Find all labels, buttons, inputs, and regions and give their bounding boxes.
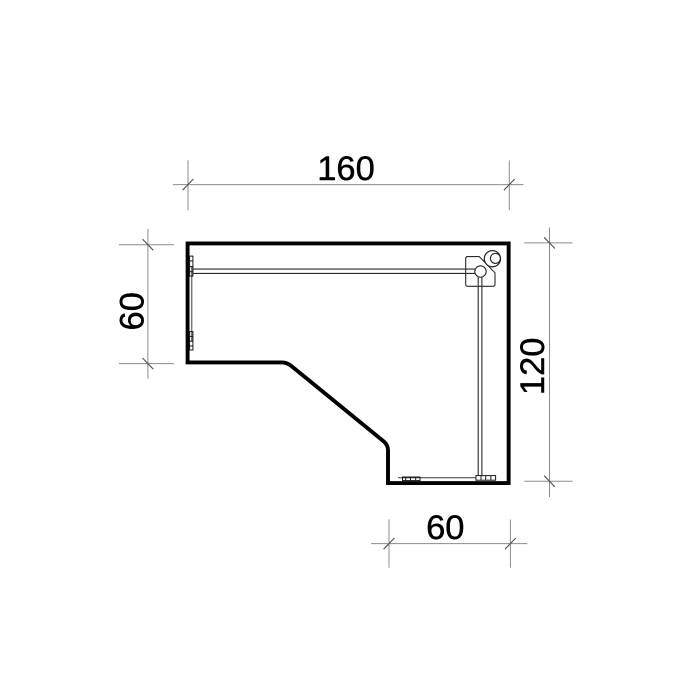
svg-text:120: 120 (514, 338, 552, 396)
svg-text:60: 60 (114, 292, 152, 330)
svg-text:160: 160 (317, 150, 375, 188)
svg-text:60: 60 (426, 509, 464, 547)
